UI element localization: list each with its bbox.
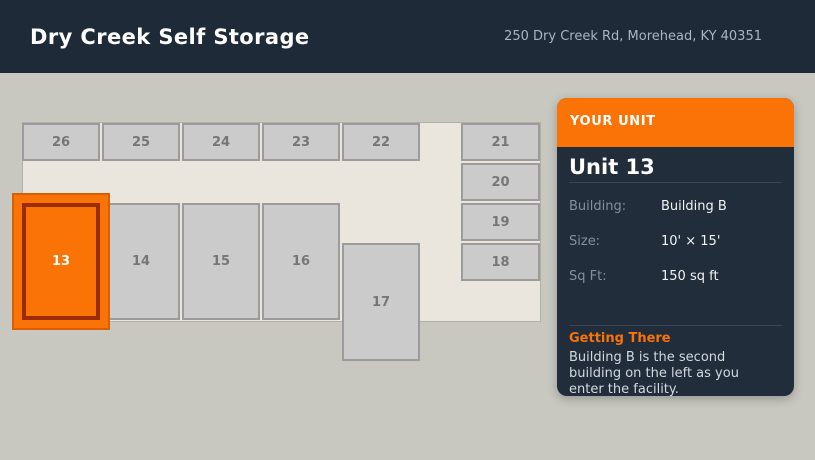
unit-24[interactable]: 24: [182, 123, 260, 161]
detail-label: Building:: [569, 199, 661, 215]
getting-there-title: Getting There: [569, 331, 782, 347]
unit-16[interactable]: 16: [262, 203, 340, 320]
unit-label: 15: [212, 254, 230, 269]
unit-13[interactable]: 13: [22, 203, 100, 320]
detail-value: Building B: [661, 199, 727, 215]
unit-23[interactable]: 23: [262, 123, 340, 161]
divider-top: [569, 182, 782, 183]
unit-22[interactable]: 22: [342, 123, 420, 161]
unit-14[interactable]: 14: [102, 203, 180, 320]
detail-value: 10' × 15': [661, 234, 720, 250]
unit-label: 25: [132, 135, 150, 150]
detail-label: Size:: [569, 234, 661, 250]
unit-21[interactable]: 21: [461, 123, 540, 161]
divider-bottom: [569, 325, 782, 326]
panel-header: YOUR UNIT: [557, 98, 794, 147]
unit-label: 16: [292, 254, 310, 269]
unit-label: 13: [52, 254, 70, 269]
unit-label: 20: [491, 175, 509, 190]
app-header: Dry Creek Self Storage 250 Dry Creek Rd,…: [0, 0, 815, 73]
unit-13-highlight[interactable]: 13: [12, 193, 110, 330]
unit-details: Building:Building BSize:10' × 15'Sq Ft:1…: [569, 199, 782, 285]
unit-label: 17: [372, 295, 390, 310]
unit-label: 22: [372, 135, 390, 150]
unit-label: 24: [212, 135, 230, 150]
unit-17[interactable]: 17: [342, 243, 420, 361]
unit-25[interactable]: 25: [102, 123, 180, 161]
unit-title: Unit 13: [569, 155, 782, 179]
unit-19[interactable]: 19: [461, 203, 540, 241]
unit-26[interactable]: 26: [22, 123, 100, 161]
unit-15[interactable]: 15: [182, 203, 260, 320]
unit-label: 23: [292, 135, 310, 150]
getting-there-text: Building B is the second building on the…: [569, 350, 753, 396]
panel-header-label: YOUR UNIT: [570, 114, 656, 129]
unit-label: 26: [52, 135, 70, 150]
your-unit-panel: YOUR UNIT Unit 13 Building:Building BSiz…: [557, 98, 794, 396]
detail-row: Size:10' × 15': [569, 234, 782, 250]
unit-18[interactable]: 18: [461, 243, 540, 281]
page-title: Dry Creek Self Storage: [30, 25, 310, 49]
app: Dry Creek Self Storage 250 Dry Creek Rd,…: [0, 0, 815, 460]
detail-row: Sq Ft:150 sq ft: [569, 269, 782, 285]
panel-body: Unit 13 Building:Building BSize:10' × 15…: [557, 147, 794, 396]
detail-value: 150 sq ft: [661, 269, 719, 285]
unit-label: 19: [491, 215, 509, 230]
unit-20[interactable]: 20: [461, 163, 540, 201]
detail-row: Building:Building B: [569, 199, 782, 215]
unit-label: 14: [132, 254, 150, 269]
facility-address: 250 Dry Creek Rd, Morehead, KY 40351: [504, 29, 762, 44]
detail-label: Sq Ft:: [569, 269, 661, 285]
unit-label: 21: [491, 135, 509, 150]
unit-label: 18: [491, 255, 509, 270]
